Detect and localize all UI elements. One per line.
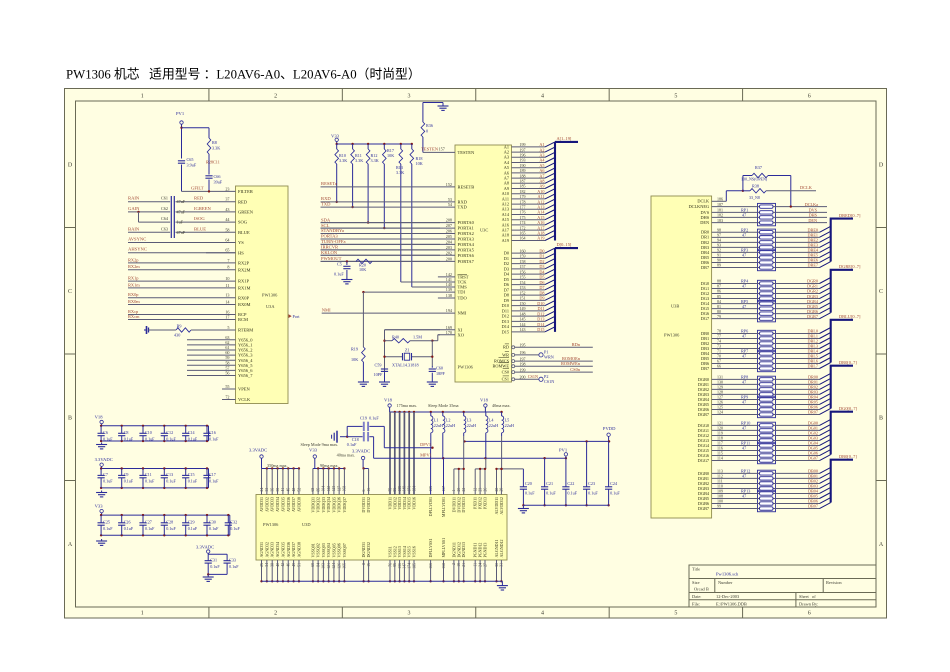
- svg-text:3.3VADC: 3.3VADC: [95, 457, 113, 462]
- svg-text:Sheet of: Sheet of: [799, 594, 816, 599]
- svg-text:0.1uF: 0.1uF: [188, 437, 198, 442]
- svg-text:145: 145: [520, 317, 526, 322]
- svg-text:Number: Number: [718, 580, 733, 585]
- svg-text:0.1uF: 0.1uF: [103, 437, 113, 442]
- svg-text:DBL7: DBL7: [808, 364, 818, 369]
- svg-text:47: 47: [742, 213, 746, 218]
- svg-text:47: 47: [742, 334, 746, 339]
- svg-text:2: 2: [274, 611, 277, 617]
- svg-text:TXD: TXD: [458, 205, 468, 210]
- svg-text:DR07: DR07: [808, 410, 818, 415]
- svg-text:TDI: TDI: [458, 290, 466, 295]
- svg-text:47: 47: [742, 304, 746, 309]
- svg-text:22uH: 22uH: [467, 423, 476, 428]
- svg-text:196: 196: [520, 350, 526, 355]
- svg-text:DGR7: DGR7: [698, 412, 710, 417]
- svg-text:HS: HS: [238, 250, 244, 255]
- svg-text:C: C: [879, 289, 883, 295]
- svg-text:C6: C6: [103, 430, 108, 435]
- svg-text:Size: Size: [692, 580, 700, 585]
- svg-text:GAIN: GAIN: [128, 206, 140, 211]
- svg-text:DRED[0..7]: DRED[0..7]: [839, 213, 861, 218]
- svg-text:VPEN: VPEN: [238, 387, 251, 392]
- svg-text:C32: C32: [230, 520, 237, 525]
- svg-text:D6: D6: [539, 280, 544, 285]
- svg-text:114: 114: [717, 456, 723, 461]
- svg-text:17: 17: [225, 315, 229, 320]
- svg-text:PORTA7: PORTA7: [458, 259, 475, 264]
- svg-text:B: B: [879, 415, 883, 421]
- svg-text:AGND36: AGND36: [286, 542, 291, 558]
- svg-text:0.1uF: 0.1uF: [124, 479, 134, 484]
- svg-text:VDDQ34: VDDQ34: [326, 497, 331, 513]
- svg-text:0.1uF: 0.1uF: [188, 526, 198, 531]
- svg-text:C16: C16: [209, 430, 216, 435]
- svg-text:TDO: TDO: [458, 296, 468, 301]
- svg-text:C8: C8: [124, 430, 129, 435]
- svg-text:3.3K: 3.3K: [371, 158, 379, 163]
- svg-text:C31: C31: [210, 557, 217, 562]
- svg-text:C25: C25: [103, 520, 110, 525]
- svg-text:156: 156: [520, 269, 526, 274]
- svg-text:C20: C20: [525, 481, 532, 486]
- svg-text:Sleep Mode 9ma max.: Sleep Mode 9ma max.: [301, 442, 339, 447]
- svg-text:Date:: Date:: [692, 594, 702, 599]
- svg-text:D: D: [879, 162, 884, 168]
- svg-text:VSSQ03: VSSQ03: [321, 543, 326, 557]
- svg-text:0.1uF: 0.1uF: [145, 526, 155, 531]
- svg-text:79: 79: [717, 314, 721, 319]
- svg-text:D7: D7: [504, 287, 510, 292]
- svg-text:D6: D6: [504, 282, 510, 287]
- svg-text:D1: D1: [539, 254, 544, 259]
- svg-text:PW1306: PW1306: [262, 293, 278, 298]
- svg-text:D12: D12: [537, 311, 544, 316]
- svg-text:159: 159: [520, 254, 526, 259]
- svg-text:350ma max.: 350ma max.: [267, 463, 288, 468]
- svg-text:3.9uF: 3.9uF: [187, 163, 197, 168]
- svg-text:PORTA0: PORTA0: [458, 220, 475, 225]
- svg-text:PW1306: PW1306: [458, 365, 474, 370]
- svg-text:DGND32: DGND32: [366, 542, 371, 558]
- svg-text:VSSQ05: VSSQ05: [331, 543, 336, 557]
- svg-text:U3C: U3C: [480, 228, 488, 233]
- svg-text:DB0[0..7]: DB0[0..7]: [839, 454, 857, 459]
- svg-text:VDDQ36: VDDQ36: [337, 497, 342, 513]
- svg-text:CS1: CS1: [502, 377, 509, 382]
- svg-text:XO: XO: [458, 332, 465, 337]
- svg-text:D11: D11: [537, 306, 544, 311]
- svg-text:AVDD31: AVDD31: [259, 497, 264, 512]
- svg-text:AVDD34: AVDD34: [275, 497, 280, 512]
- svg-text:1uF: 1uF: [177, 220, 184, 225]
- svg-text:0.1uF: 0.1uF: [209, 526, 219, 531]
- svg-text:C24: C24: [610, 481, 618, 486]
- svg-text:4: 4: [541, 94, 544, 100]
- svg-text:RX2m: RX2m: [128, 264, 140, 269]
- svg-text:DCLKNEG: DCLKNEG: [689, 204, 710, 209]
- svg-text:DCLKa: DCLKa: [805, 202, 818, 207]
- svg-text:0.1uF: 0.1uF: [166, 437, 176, 442]
- svg-text:D8: D8: [504, 293, 509, 298]
- svg-text:0.1uF: 0.1uF: [103, 479, 113, 484]
- svg-text:C21: C21: [546, 481, 553, 486]
- svg-text:56: 56: [225, 371, 229, 376]
- svg-text:22uH: 22uH: [446, 423, 455, 428]
- svg-text:VDDQ32: VDDQ32: [316, 497, 321, 513]
- svg-text:RXcm: RXcm: [128, 314, 140, 319]
- svg-text:V33: V33: [331, 134, 340, 139]
- svg-text:RX2M: RX2M: [238, 267, 251, 272]
- svg-text:D14: D14: [502, 324, 510, 329]
- svg-text:U3A: U3A: [266, 304, 275, 309]
- svg-text:D0: D0: [539, 248, 544, 253]
- svg-text:AVDD36: AVDD36: [286, 497, 291, 512]
- svg-text:18PF: 18PF: [436, 371, 446, 376]
- svg-text:RCM: RCM: [238, 317, 248, 322]
- svg-text:C60: C60: [436, 366, 443, 371]
- svg-text:D2: D2: [504, 261, 509, 266]
- svg-text:MPLLVSS1: MPLLVSS1: [441, 538, 446, 558]
- svg-text:65: 65: [225, 248, 229, 253]
- svg-text:R40: R40: [392, 335, 399, 340]
- svg-text:0.1uF: 0.1uF: [124, 437, 134, 442]
- svg-text:43: 43: [225, 207, 229, 212]
- svg-text:IGREEN: IGREEN: [194, 206, 212, 211]
- svg-text:U3D: U3D: [302, 522, 311, 527]
- svg-text:D15: D15: [502, 329, 509, 334]
- svg-text:VDDQ37: VDDQ37: [342, 497, 347, 513]
- svg-text:DPLLVSS1: DPLLVSS1: [428, 539, 433, 558]
- svg-text:200: 200: [446, 256, 452, 261]
- svg-text:170: 170: [446, 330, 452, 335]
- svg-text:0.1uF: 0.1uF: [166, 479, 176, 484]
- svg-text:A: A: [879, 542, 884, 548]
- svg-text:L1: L1: [434, 418, 439, 423]
- svg-text:47: 47: [742, 253, 746, 258]
- svg-text:55: 55: [225, 384, 229, 389]
- svg-text:D[0..15]: D[0..15]: [557, 242, 572, 247]
- svg-text:PV1: PV1: [176, 111, 185, 116]
- svg-text:Pw1306.sch: Pw1306.sch: [716, 572, 739, 577]
- svg-text:10PF: 10PF: [374, 372, 384, 377]
- svg-text:47: 47: [742, 354, 746, 359]
- svg-text:GFILT: GFILT: [191, 186, 204, 191]
- svg-text:DG0[0..7]: DG0[0..7]: [839, 406, 858, 411]
- svg-text:143: 143: [520, 327, 526, 332]
- svg-text:L5: L5: [505, 418, 510, 423]
- svg-text:GREEN: GREEN: [238, 210, 254, 215]
- svg-text:D13: D13: [537, 317, 544, 322]
- svg-text:0.1uF: 0.1uF: [166, 526, 176, 531]
- svg-text:VSSQ01: VSSQ01: [310, 543, 315, 557]
- svg-text:C65: C65: [187, 157, 194, 162]
- svg-text:DPV1: DPV1: [420, 442, 431, 447]
- svg-text:C10: C10: [145, 430, 152, 435]
- svg-text:186: 186: [717, 197, 723, 202]
- svg-text:SOG: SOG: [238, 220, 248, 225]
- svg-text:D10: D10: [537, 301, 544, 306]
- svg-text:4: 4: [541, 611, 544, 617]
- svg-text:C29: C29: [188, 520, 195, 525]
- svg-text:RX1M: RX1M: [238, 286, 251, 291]
- svg-text:DVDD32: DVDD32: [366, 497, 371, 513]
- svg-text:VCLK: VCLK: [238, 397, 251, 402]
- svg-text:AGND31: AGND31: [259, 542, 264, 558]
- svg-text:DCLK: DCLK: [800, 185, 813, 190]
- svg-text:RX1P: RX1P: [238, 279, 250, 284]
- svg-text:PWMOUT: PWMOUT: [321, 256, 342, 261]
- svg-text:47: 47: [742, 284, 746, 289]
- svg-text:AGND33: AGND33: [270, 542, 275, 558]
- svg-text:0.1uF: 0.1uF: [145, 479, 155, 484]
- svg-text:DR0[0..7]: DR0[0..7]: [839, 360, 857, 365]
- svg-text:C14: C14: [188, 430, 195, 435]
- svg-text:Sleep Mode 35ma: Sleep Mode 35ma: [428, 403, 459, 408]
- svg-text:STANDBYa: STANDBYa: [321, 228, 344, 233]
- svg-text:D2: D2: [539, 259, 544, 264]
- svg-text:PVDD: PVDD: [603, 426, 616, 431]
- svg-text:C28: C28: [166, 520, 173, 525]
- svg-text:3.3K: 3.3K: [212, 146, 220, 151]
- svg-text:12-Dec-2003: 12-Dec-2003: [716, 594, 740, 599]
- svg-text:DR7: DR7: [701, 265, 710, 270]
- svg-text:47: 47: [742, 494, 746, 499]
- svg-text:CS0: CS0: [502, 370, 509, 375]
- svg-text:0.1uF: 0.1uF: [525, 491, 535, 496]
- svg-text:5: 5: [674, 94, 677, 100]
- svg-text:58: 58: [225, 227, 229, 232]
- svg-text:MPV1: MPV1: [420, 453, 432, 458]
- svg-text:D3: D3: [504, 266, 509, 271]
- svg-text:BAIN: BAIN: [128, 226, 140, 231]
- svg-text:PORTA1: PORTA1: [458, 226, 474, 231]
- svg-text:206: 206: [446, 229, 452, 234]
- svg-text:C63: C63: [161, 226, 168, 231]
- svg-text:89: 89: [717, 263, 721, 268]
- svg-text:CS0n: CS0n: [570, 367, 581, 372]
- svg-text:PV1: PV1: [559, 448, 568, 453]
- svg-text:124: 124: [717, 410, 723, 415]
- svg-text:PORTA6: PORTA6: [458, 253, 475, 258]
- svg-text:A19: A19: [502, 238, 509, 243]
- svg-text:R8: R8: [212, 140, 217, 145]
- svg-text:D5: D5: [504, 277, 509, 282]
- svg-text:3: 3: [408, 94, 411, 100]
- svg-text:Drawn By:: Drawn By:: [799, 602, 818, 607]
- svg-text:C64: C64: [161, 216, 169, 221]
- svg-text:V33: V33: [95, 504, 104, 509]
- svg-text:47: 47: [742, 474, 746, 479]
- svg-text:47nF: 47nF: [177, 230, 186, 235]
- svg-text:0.1uF: 0.1uF: [588, 491, 598, 496]
- svg-text:PORTA4: PORTA4: [458, 242, 475, 247]
- svg-text:151: 151: [520, 296, 526, 301]
- svg-text:157: 157: [439, 147, 445, 152]
- svg-text:RX0m: RX0m: [128, 299, 140, 304]
- svg-text:VSS16: VSS16: [412, 546, 417, 557]
- svg-text:D3: D3: [539, 264, 544, 269]
- svg-text:148: 148: [520, 311, 526, 316]
- svg-text:149: 149: [520, 306, 526, 311]
- svg-text:DG7: DG7: [701, 316, 710, 321]
- svg-text:198: 198: [520, 361, 526, 366]
- svg-text:DCLK: DCLK: [697, 199, 710, 204]
- svg-text:DVDD13: DVDD13: [461, 497, 466, 513]
- svg-text:C7: C7: [103, 472, 108, 477]
- svg-text:40ma max.: 40ma max.: [492, 403, 511, 408]
- svg-text:138: 138: [446, 293, 452, 298]
- svg-text:ROMWEn: ROMWEn: [561, 361, 581, 366]
- svg-text:D4: D4: [539, 269, 545, 274]
- svg-text:208: 208: [446, 218, 452, 223]
- svg-text:D9: D9: [504, 298, 509, 303]
- svg-text:DB07: DB07: [808, 504, 818, 509]
- svg-text:A19: A19: [537, 236, 544, 241]
- svg-text:160: 160: [520, 248, 526, 253]
- svg-text:10K: 10K: [387, 153, 394, 158]
- svg-text:R9: R9: [177, 324, 182, 329]
- svg-text:RESETB: RESETB: [458, 185, 475, 190]
- svg-text:E:\PW1306.DDB: E:\PW1306.DDB: [716, 602, 747, 607]
- svg-text:203: 203: [446, 245, 452, 250]
- svg-text:C66: C66: [214, 174, 221, 179]
- svg-text:C26: C26: [124, 520, 131, 525]
- svg-text:Orcad B: Orcad B: [694, 587, 709, 592]
- svg-text:183: 183: [717, 218, 723, 223]
- svg-text:AGND32: AGND32: [264, 542, 269, 558]
- svg-text:72: 72: [225, 395, 229, 400]
- svg-text:SCL: SCL: [321, 223, 330, 228]
- svg-text:DEN: DEN: [700, 220, 709, 225]
- svg-text:DPLLVD01: DPLLVD01: [428, 497, 433, 516]
- svg-text:Revision: Revision: [826, 580, 842, 585]
- svg-text:Port: Port: [293, 314, 301, 319]
- svg-text:200: 200: [520, 375, 526, 380]
- svg-text:VSSQ06: VSSQ06: [337, 543, 342, 557]
- svg-text:RX1p: RX1p: [128, 276, 139, 281]
- svg-text:D7: D7: [539, 285, 544, 290]
- svg-text:L3: L3: [467, 418, 472, 423]
- svg-text:RX0p: RX0p: [128, 292, 139, 297]
- svg-text:TURN-OFFa: TURN-OFFa: [321, 239, 346, 244]
- svg-text:0.1uF: 0.1uF: [145, 437, 155, 442]
- svg-text:DGND13: DGND13: [461, 542, 466, 558]
- svg-text:C61: C61: [161, 196, 168, 201]
- svg-text:AVDD38: AVDD38: [296, 497, 301, 512]
- svg-text:AVDD37: AVDD37: [291, 497, 296, 512]
- svg-text:90ma max.: 90ma max.: [320, 463, 339, 468]
- svg-text:BLUE: BLUE: [238, 230, 250, 235]
- svg-text:CS1N: CS1N: [528, 374, 538, 379]
- svg-text:10K: 10K: [359, 267, 366, 272]
- svg-text:D15: D15: [537, 327, 544, 332]
- svg-text:AGND34: AGND34: [275, 542, 280, 558]
- svg-text:1.5M: 1.5M: [413, 335, 422, 340]
- svg-text:SDA: SDA: [321, 217, 331, 222]
- svg-text:D12: D12: [502, 314, 509, 319]
- svg-text:152: 152: [446, 182, 452, 187]
- svg-text:TESTEN: TESTEN: [421, 147, 439, 152]
- svg-text:RX0P: RX0P: [238, 295, 250, 300]
- svg-text:DGRE[0..7]: DGRE[0..7]: [839, 264, 861, 269]
- svg-text:R36: R36: [426, 123, 433, 128]
- svg-text:ISOG: ISOG: [194, 216, 205, 221]
- svg-text:194: 194: [446, 308, 453, 313]
- svg-text:AGND38: AGND38: [296, 542, 301, 558]
- svg-text:VDD16: VDD16: [412, 497, 417, 510]
- svg-text:C17: C17: [209, 472, 216, 477]
- svg-text:Title: Title: [692, 567, 700, 572]
- svg-text:R19: R19: [351, 347, 358, 352]
- svg-text:FILTER: FILTER: [238, 189, 253, 194]
- svg-text:R28C11: R28C11: [206, 160, 220, 165]
- svg-text:Y656_7: Y656_7: [238, 373, 253, 378]
- svg-text:D8: D8: [539, 290, 544, 295]
- svg-text:AVSYNC: AVSYNC: [128, 237, 146, 242]
- svg-text:R37: R37: [755, 165, 762, 170]
- svg-text:RX2p: RX2p: [128, 257, 139, 262]
- svg-text:195: 195: [520, 343, 526, 348]
- svg-text:5: 5: [674, 611, 677, 617]
- svg-text:0.1uF: 0.1uF: [229, 564, 239, 569]
- svg-text:10: 10: [225, 276, 229, 281]
- svg-text:RD: RD: [503, 345, 509, 350]
- svg-text:C33: C33: [229, 557, 236, 562]
- svg-text:NMI: NMI: [322, 308, 331, 313]
- svg-text:C: C: [68, 289, 72, 295]
- svg-text:D0: D0: [504, 251, 509, 256]
- svg-text:3: 3: [408, 611, 411, 617]
- svg-text:8: 8: [227, 265, 229, 270]
- svg-text:VDDQ33: VDDQ33: [321, 497, 326, 513]
- svg-text:A[1..19]: A[1..19]: [557, 136, 572, 141]
- svg-text:V18: V18: [384, 398, 393, 403]
- svg-text:PW1306: PW1306: [664, 333, 680, 338]
- svg-text:AVDD35: AVDD35: [280, 497, 285, 512]
- svg-text:1: 1: [141, 94, 144, 100]
- svg-text:D11: D11: [502, 308, 509, 313]
- svg-text:0.1uF: 0.1uF: [209, 479, 219, 484]
- svg-text:RX1m: RX1m: [128, 282, 140, 287]
- svg-text:39uF: 39uF: [214, 180, 223, 185]
- svg-text:AVDD33: AVDD33: [270, 497, 275, 512]
- svg-text:V33: V33: [309, 448, 318, 453]
- svg-text:VSSQ07: VSSQ07: [342, 543, 347, 557]
- svg-text:22uH: 22uH: [505, 423, 514, 428]
- svg-text:DGB7: DGB7: [698, 506, 710, 511]
- svg-text:D10: D10: [502, 303, 509, 308]
- svg-text:PORTA2: PORTA2: [458, 231, 474, 236]
- svg-text:0.1uF: 0.1uF: [567, 491, 577, 496]
- svg-text:PGND13: PGND13: [483, 543, 488, 558]
- svg-text:D4: D4: [504, 272, 510, 277]
- svg-text:C59: C59: [375, 363, 382, 368]
- svg-text:47: 47: [742, 233, 746, 238]
- svg-text:VDDQ35: VDDQ35: [331, 497, 336, 513]
- svg-text:37: 37: [225, 197, 229, 202]
- svg-text:0.1uF: 0.1uF: [610, 491, 620, 496]
- svg-text:RESETa: RESETa: [321, 181, 337, 186]
- svg-text:C13: C13: [166, 472, 173, 477]
- svg-text:C62: C62: [161, 206, 168, 211]
- svg-text:47nF: 47nF: [177, 209, 186, 214]
- svg-text:152: 152: [520, 290, 526, 295]
- svg-text:3.3VADC: 3.3VADC: [196, 545, 214, 550]
- svg-text:22uH: 22uH: [434, 423, 443, 428]
- svg-text:22uH: 22uH: [489, 423, 498, 428]
- svg-text:0.1uF: 0.1uF: [210, 564, 220, 569]
